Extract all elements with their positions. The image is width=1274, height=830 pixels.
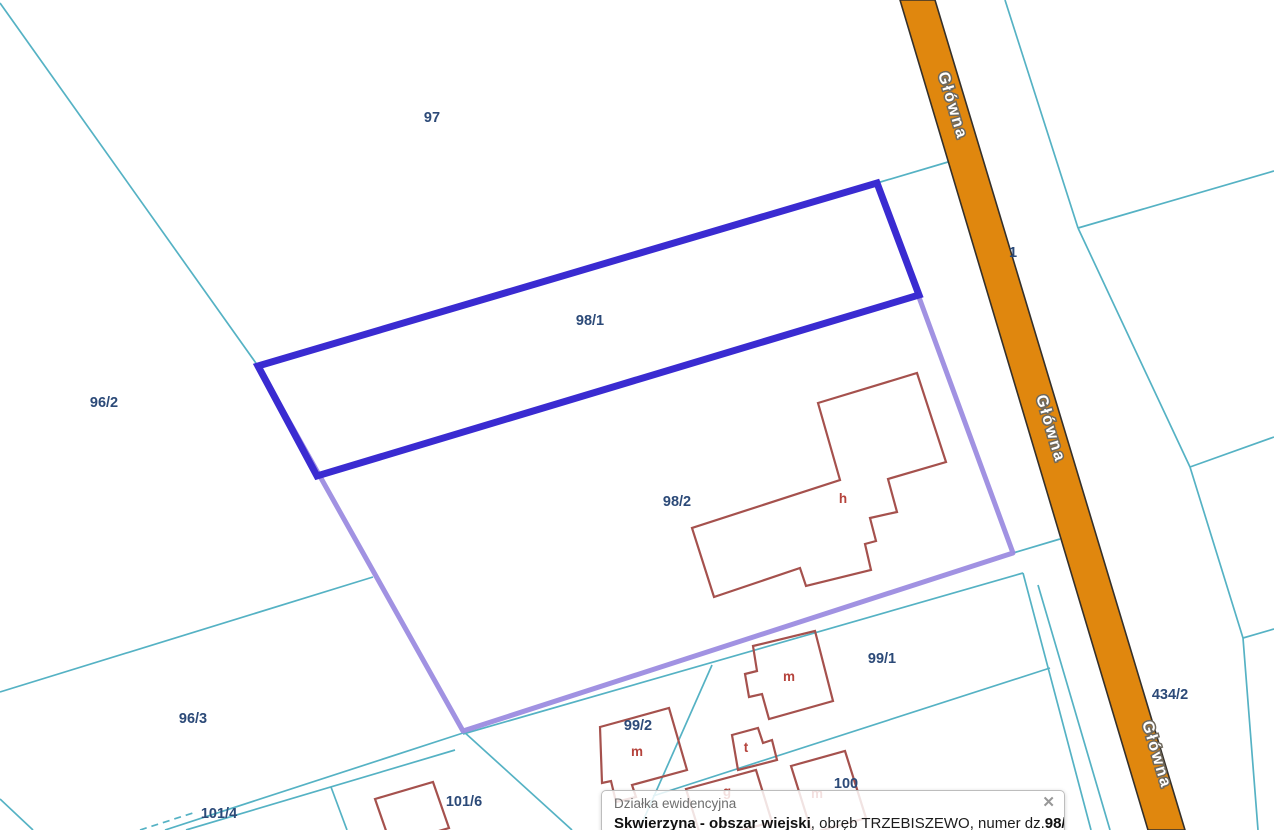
map-labels: 9796/296/398/198/299/199/2100101/4101/64… [90,70,1188,822]
cadastral-map[interactable]: 9796/296/398/198/299/199/2100101/4101/64… [0,0,1274,830]
boundary-right-4 [1243,629,1274,638]
boundary-97-96-2 [0,3,258,366]
boundary-101-6-99-2 [463,731,572,830]
building-h-98-2 [692,373,946,597]
popup-title: Działka ewidencyjna [614,796,1052,811]
popup-close-icon[interactable]: ✕ [1042,795,1055,810]
parcel-label-97: 97 [424,110,440,126]
boundary-101-4-101-6 [331,787,347,830]
boundary-right-2 [1078,228,1190,467]
boundary-1-north [1005,0,1078,228]
popup-parcel-number: 98/1 [1045,815,1065,830]
dashed-boundary-101-4 [140,812,196,830]
boundary-434-2-west [1190,467,1258,830]
parcel-label-99/1: 99/1 [868,651,896,667]
boundary-right-3 [1190,437,1274,467]
corner-98-road [1013,539,1060,553]
popup-number-prefix: , numer dz. [970,815,1045,830]
building-label-h-0: h [839,491,847,506]
corner-bottom-left [0,799,33,830]
popup-obreb: TRZEBISZEWO [861,815,969,830]
boundary-98-99 [463,573,1023,734]
parcel-label-96/2: 96/2 [90,395,118,411]
building-101-6 [375,782,449,830]
map-viewport[interactable]: 9796/296/398/198/299/199/2100101/4101/64… [0,0,1274,830]
building-label-m-2: m [631,744,643,759]
boundary-97-road [877,162,948,183]
boundary-right-1 [1078,171,1274,228]
parcel-label-101/6: 101/6 [446,794,482,810]
selected-parcel-98-1-outline[interactable] [258,183,919,476]
popup-municipality: Skwierzyna - obszar wiejski [614,815,811,830]
building-label-m-1: m [783,669,795,684]
parcel-boundaries [0,0,1274,830]
popup-body: Skwierzyna - obszar wiejski, obręb TRZEB… [614,815,1052,830]
parcel-label-98/1: 98/1 [576,313,604,329]
parcel-label-96/3: 96/3 [179,711,207,727]
parcel-info-popup: ✕ Działka ewidencyjna Skwierzyna - obsza… [601,790,1065,830]
parcel-label-98/2: 98/2 [663,494,691,510]
parcel-label-434/2: 434/2 [1152,687,1188,703]
parcel-label-1: 1 [1009,245,1017,261]
popup-obreb-prefix: , obręb [811,815,862,830]
boundary-96-2-96-3 [0,577,373,692]
parcel-label-99/2: 99/2 [624,718,652,734]
building-label-t-3: t [744,740,749,755]
parcel-label-101/4: 101/4 [201,806,237,822]
